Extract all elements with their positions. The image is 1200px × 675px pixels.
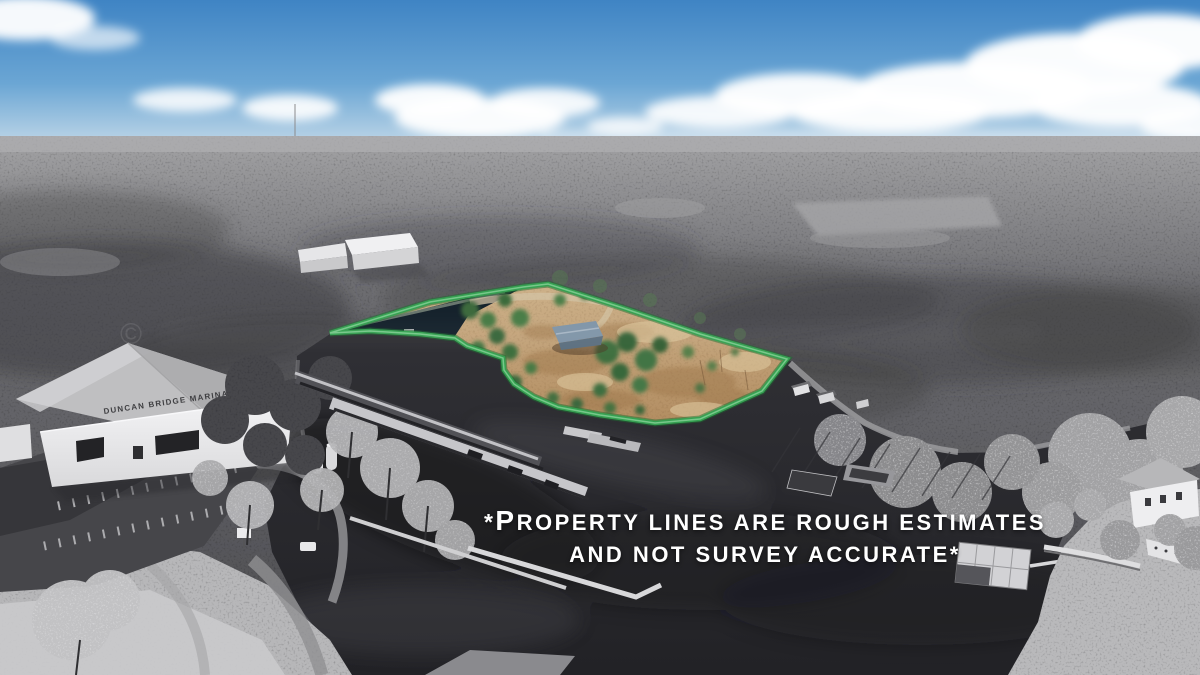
photo-scene: DUNCAN BRIDGE MARINA xyxy=(0,0,1200,675)
disclaimer-overlay: *PROPERTY LINES ARE ROUGH ESTIMATES AND … xyxy=(484,502,1046,569)
disclaimer-line-1-rest: ROPERTY LINES ARE ROUGH ESTIMATES xyxy=(517,510,1046,535)
asterisk-prefix: * xyxy=(484,509,495,535)
white-van xyxy=(300,542,316,551)
disclaimer-initial-cap: P xyxy=(495,505,516,536)
disclaimer-line-2: AND NOT SURVEY ACCURATE* xyxy=(484,540,1046,569)
annex-shed xyxy=(0,424,32,462)
svg-text:©: © xyxy=(120,318,142,351)
aerial-photo: DUNCAN BRIDGE MARINA xyxy=(0,0,1200,675)
disclaimer-line-1: *PROPERTY LINES ARE ROUGH ESTIMATES xyxy=(484,502,1046,540)
